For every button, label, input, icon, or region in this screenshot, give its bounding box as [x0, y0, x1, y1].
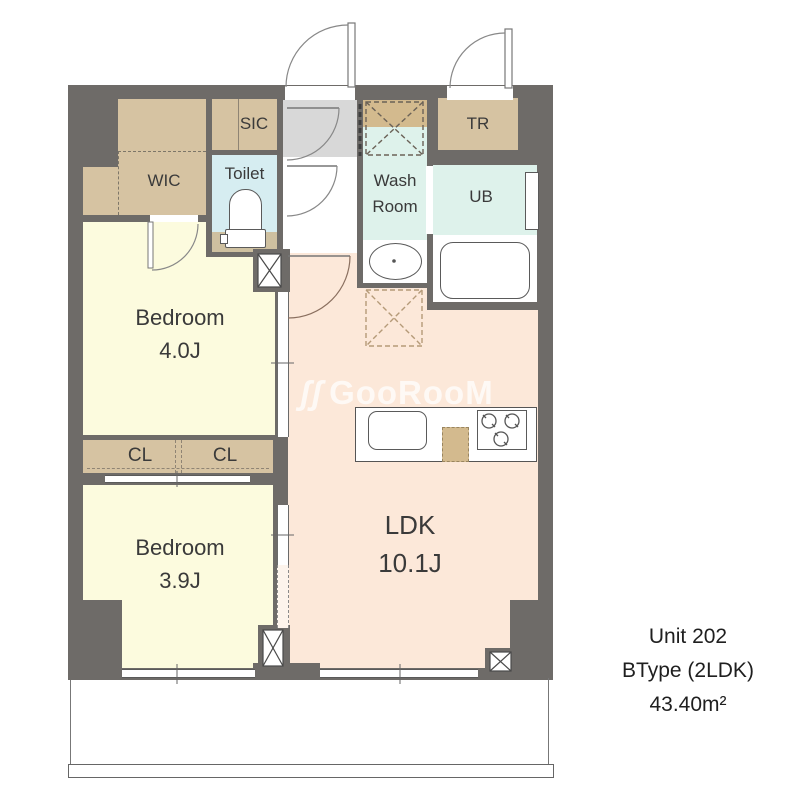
watermark-logo-icon: ʃʃ — [300, 374, 323, 411]
ub-door — [426, 166, 433, 234]
label-tr: TR — [438, 114, 518, 134]
kitchen-stove — [477, 410, 527, 450]
kitchen-sink — [368, 411, 427, 450]
bathtub — [440, 242, 530, 299]
pillar-center-top — [253, 249, 290, 292]
balcony-rail — [68, 764, 554, 778]
unit-type: BType (2LDK) — [598, 654, 778, 688]
floor-plan: WIC SIC Toilet Wash Room UB TR CL CL Bed… — [0, 0, 800, 800]
label-cl2: CL — [180, 445, 270, 467]
watermark-text: GooRooM — [329, 374, 494, 411]
partition-bedroom2-ldk — [277, 505, 289, 565]
window-bedroom2 — [122, 669, 255, 678]
ldk-area: 10.1J — [330, 544, 490, 582]
closet-sliding-door — [105, 475, 250, 483]
label-wic: WIC — [121, 171, 207, 191]
label-ldk: LDK 10.1J — [330, 506, 490, 582]
label-washroom: Wash Room — [363, 168, 427, 220]
balcony-left-edge — [70, 680, 71, 764]
entrance-opening — [285, 86, 355, 100]
pillar-center-bottom — [258, 625, 290, 668]
label-bedroom2: Bedroom 3.9J — [95, 531, 265, 597]
balcony-right-edge — [548, 678, 549, 764]
wic-dash-v — [118, 151, 119, 215]
watermark: ʃʃGooRooM — [300, 374, 500, 412]
label-cl1: CL — [95, 445, 185, 467]
label-toilet: Toilet — [212, 164, 277, 184]
label-ub: UB — [433, 187, 529, 207]
unit-area: 43.40m² — [598, 688, 778, 722]
partition-bedroom2-open — [277, 565, 289, 628]
bedroom1-area: 4.0J — [95, 334, 265, 367]
wic-door-opening — [150, 215, 198, 222]
label-sic: SIC — [231, 114, 277, 134]
unit-number: Unit 202 — [598, 620, 778, 654]
room-entrance — [283, 100, 357, 158]
pillar-bottom-base — [253, 663, 320, 680]
tr-door — [450, 29, 512, 88]
kitchen-cabinet — [442, 427, 469, 462]
partition-bedroom1-ldk — [277, 292, 289, 437]
window-ldk — [320, 669, 478, 678]
room-ldk-mid — [357, 288, 427, 310]
wall-step-left — [68, 600, 122, 680]
toilet-tank — [225, 229, 266, 248]
bedroom2-area: 3.9J — [95, 564, 265, 597]
bedroom2-name: Bedroom — [95, 531, 265, 564]
wall-step-right2 — [485, 648, 553, 680]
room-wic-ext — [83, 167, 118, 215]
room-ldk-upper — [288, 253, 357, 310]
room-wic — [118, 99, 206, 215]
tr-opening — [447, 86, 513, 100]
room-ldk — [288, 310, 538, 668]
label-bedroom1: Bedroom 4.0J — [95, 301, 265, 367]
room-bedroom1-upper — [83, 222, 206, 257]
bedroom1-name: Bedroom — [95, 301, 265, 334]
washroom-top — [363, 100, 427, 127]
entrance-door — [286, 23, 355, 87]
room-hallway — [283, 157, 357, 253]
wic-dash-h — [118, 151, 206, 152]
wash-basin — [369, 243, 422, 280]
ldk-name: LDK — [330, 506, 490, 544]
unit-info: Unit 202 BType (2LDK) 43.40m² — [598, 620, 778, 722]
toilet-handle — [220, 234, 228, 244]
